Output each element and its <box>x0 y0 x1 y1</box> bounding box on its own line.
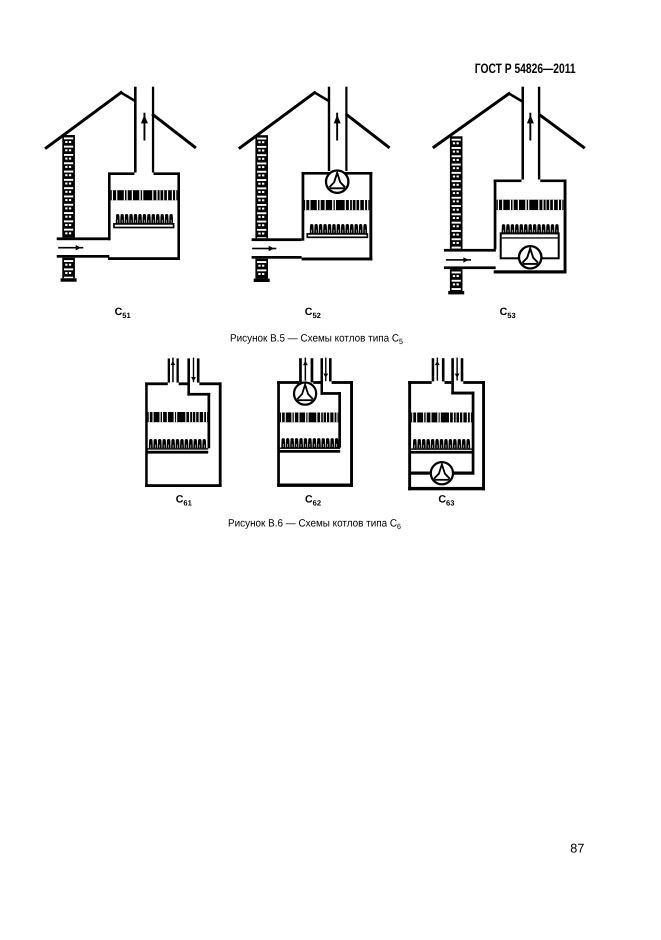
svg-text:87: 87 <box>570 841 584 855</box>
svg-text:ГОСТ Р 54826—2011: ГОСТ Р 54826—2011 <box>475 61 576 76</box>
svg-text:Рисунок В.5 — Схемы котлов тип: Рисунок В.5 — Схемы котлов типа С5 <box>230 332 403 346</box>
svg-text:Рисунок В.6 — Схемы котлов тип: Рисунок В.6 — Схемы котлов типа С6 <box>228 518 401 532</box>
